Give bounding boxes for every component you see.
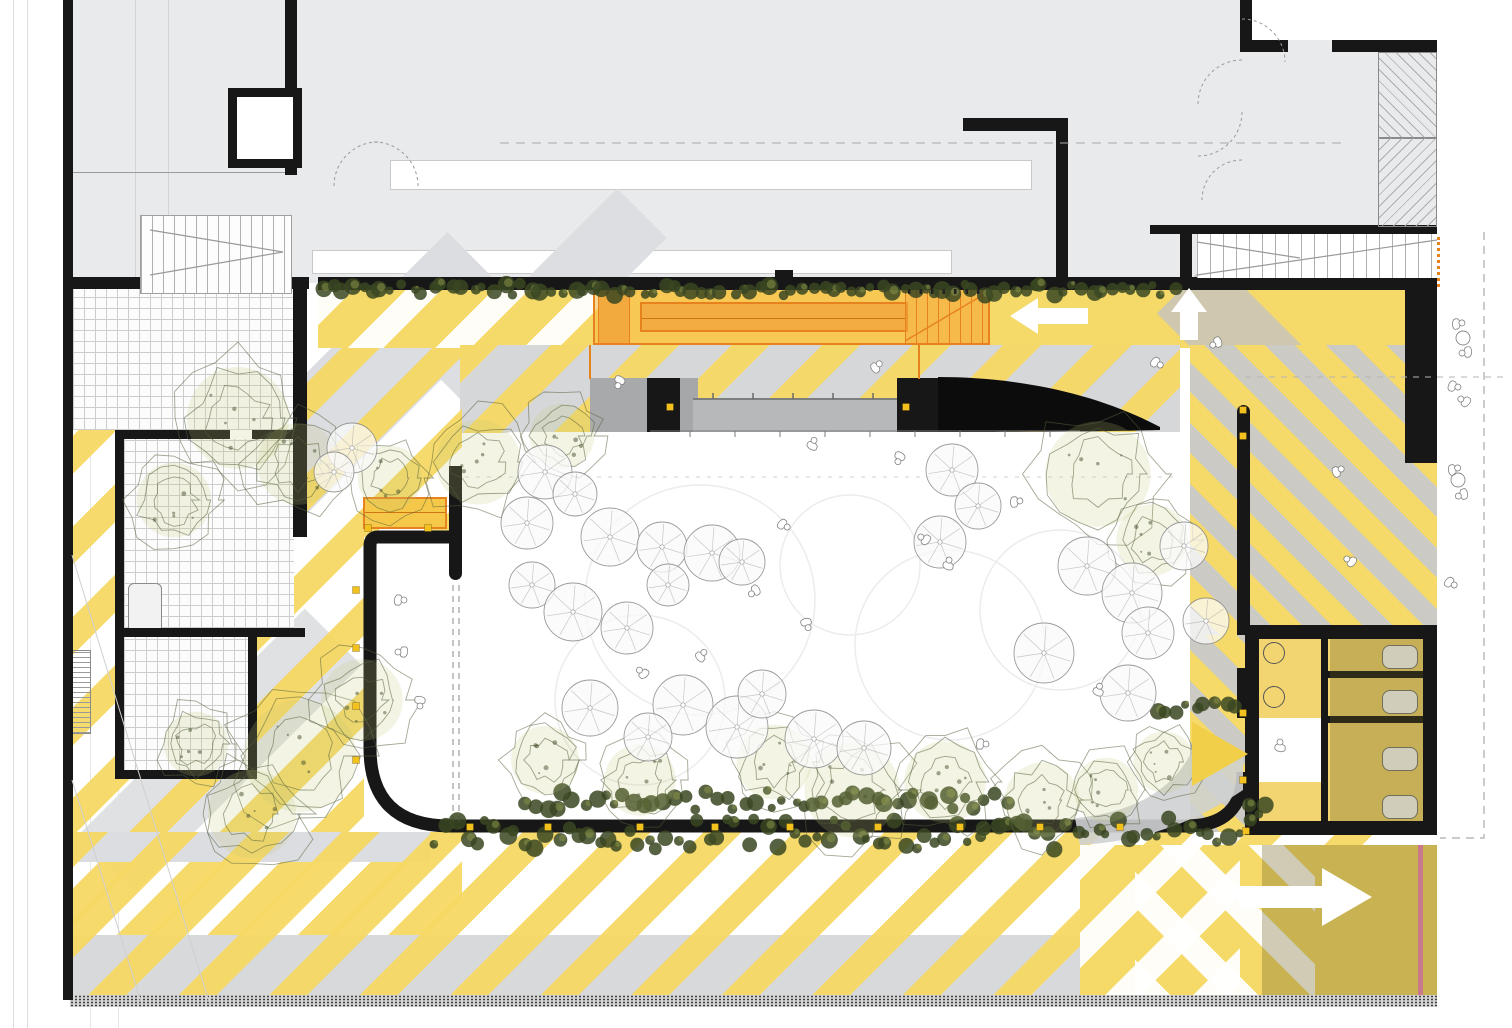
skylight-band	[390, 160, 1032, 190]
main-stair	[140, 215, 292, 294]
wall	[1240, 40, 1288, 52]
site-boundary-line	[13, 0, 14, 1028]
toilet-vestibule	[1259, 718, 1321, 782]
site-plan-drawing	[0, 0, 1512, 1028]
hatched-shaft	[1378, 137, 1437, 227]
bench-line	[365, 512, 445, 513]
corridor-wall	[449, 466, 462, 580]
corridor-stripes	[318, 290, 600, 348]
courtyard-floor	[455, 432, 1245, 832]
stage-side-block	[590, 378, 647, 432]
upper-stair	[1197, 234, 1437, 278]
east-plaza-stripes	[1190, 635, 1245, 832]
property-pink-line	[1418, 845, 1423, 995]
site-edge-stipple	[70, 995, 1437, 1007]
wall	[115, 770, 257, 779]
sink-fixture	[1263, 642, 1285, 664]
west-boundary-wall	[63, 0, 73, 1000]
room-floor	[73, 289, 295, 430]
building-shadow-overlay	[1262, 845, 1437, 995]
exit-zone	[1080, 845, 1437, 995]
toilet-block	[1245, 625, 1437, 835]
wall	[115, 430, 124, 635]
bench-line	[642, 318, 906, 319]
wall	[1056, 118, 1068, 283]
column	[775, 270, 793, 288]
room-floor	[124, 636, 250, 772]
wall	[963, 118, 1068, 131]
east-courtyard-wall	[1237, 405, 1250, 635]
wall	[293, 437, 307, 537]
ramp-landing	[598, 290, 630, 344]
east-boundary-wall	[1405, 285, 1437, 463]
hatched-shaft	[1378, 52, 1437, 139]
courtyard-corridor-floor	[364, 537, 484, 832]
ramp-edge-line	[918, 345, 920, 379]
bed-fixture	[128, 583, 162, 633]
ramp-edge-line	[589, 345, 591, 379]
upper-room	[1252, 0, 1437, 40]
partition-line	[73, 172, 295, 173]
orange-dotted-line	[1437, 237, 1440, 287]
street-margin	[1437, 0, 1512, 1028]
east-plaza-stripes	[1190, 345, 1437, 635]
wall	[115, 628, 305, 637]
wall	[1332, 40, 1437, 52]
stage-pier	[647, 378, 680, 432]
wall	[293, 277, 307, 437]
wall	[248, 636, 257, 778]
plaza-north-wall	[318, 277, 1437, 290]
wall	[115, 430, 307, 439]
stage-platform	[693, 398, 897, 432]
plaza-bench	[363, 497, 447, 529]
partition-wall	[1321, 639, 1328, 821]
sink-fixture	[1263, 686, 1285, 708]
site-boundary-line	[27, 0, 28, 1028]
building-shadow-overlay	[1330, 639, 1423, 821]
stage-pier	[897, 378, 940, 432]
ramp-stair	[905, 290, 988, 343]
grid-line	[135, 0, 136, 277]
elevator-shaft	[228, 88, 302, 168]
door-opening	[230, 430, 252, 439]
wall	[1180, 225, 1192, 290]
wall	[115, 628, 124, 778]
ramp-bench	[640, 302, 908, 332]
